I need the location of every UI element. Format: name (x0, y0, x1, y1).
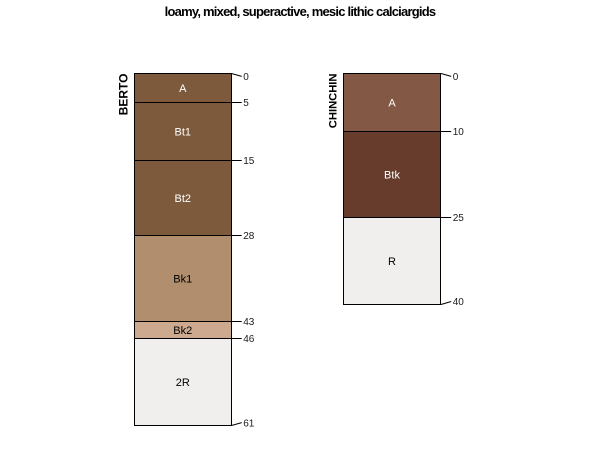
svg-text:28: 28 (243, 231, 255, 242)
svg-text:46: 46 (243, 334, 255, 345)
svg-text:A: A (179, 83, 187, 95)
svg-text:2R: 2R (176, 377, 190, 389)
svg-text:CHINCHIN: CHINCHIN (327, 74, 339, 129)
svg-text:Bt1: Bt1 (174, 127, 191, 139)
svg-text:R: R (388, 256, 396, 268)
svg-text:loamy, mixed, superactive, mes: loamy, mixed, superactive, mesic lithic … (165, 4, 436, 19)
svg-text:A: A (388, 98, 396, 110)
svg-text:0: 0 (453, 72, 459, 83)
svg-text:Bk2: Bk2 (173, 325, 192, 337)
svg-text:5: 5 (243, 98, 249, 109)
svg-text:40: 40 (453, 297, 465, 308)
svg-text:Bk1: Bk1 (173, 274, 192, 286)
svg-text:25: 25 (453, 213, 465, 224)
svg-text:15: 15 (243, 156, 255, 167)
svg-text:10: 10 (453, 127, 465, 138)
svg-text:Bt2: Bt2 (174, 193, 191, 205)
svg-text:61: 61 (243, 418, 255, 429)
svg-text:Btk: Btk (384, 170, 400, 182)
svg-text:43: 43 (243, 317, 255, 328)
svg-text:BERTO: BERTO (116, 74, 130, 116)
svg-text:0: 0 (243, 72, 249, 83)
